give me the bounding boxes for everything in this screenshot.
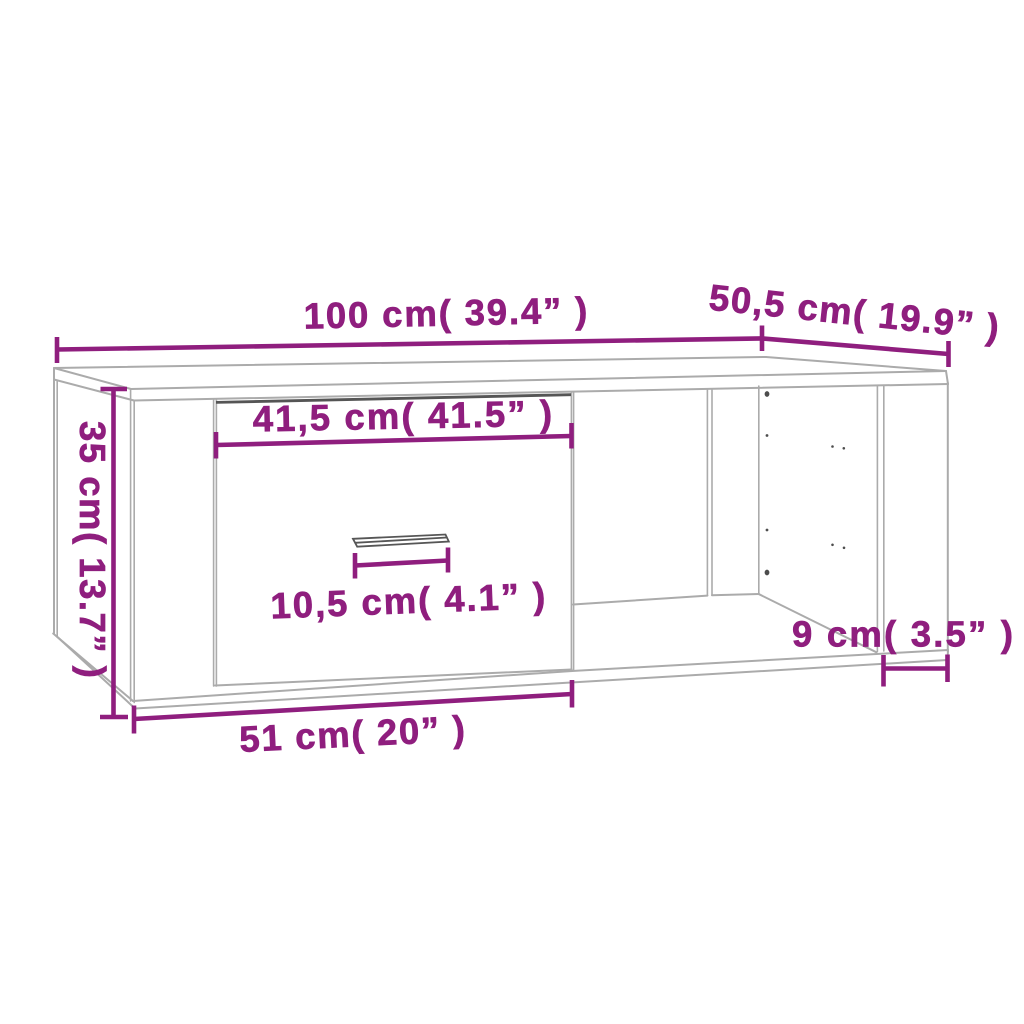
svg-text:100 cm( 39.4” ): 100 cm( 39.4” ) <box>303 290 589 337</box>
svg-text:41,5 cm( 41.5” ): 41,5 cm( 41.5” ) <box>252 393 554 440</box>
svg-text:35 cm( 13.7” ): 35 cm( 13.7” ) <box>72 421 113 679</box>
svg-text:9 cm( 3.5” ): 9 cm( 3.5” ) <box>792 614 1015 655</box>
